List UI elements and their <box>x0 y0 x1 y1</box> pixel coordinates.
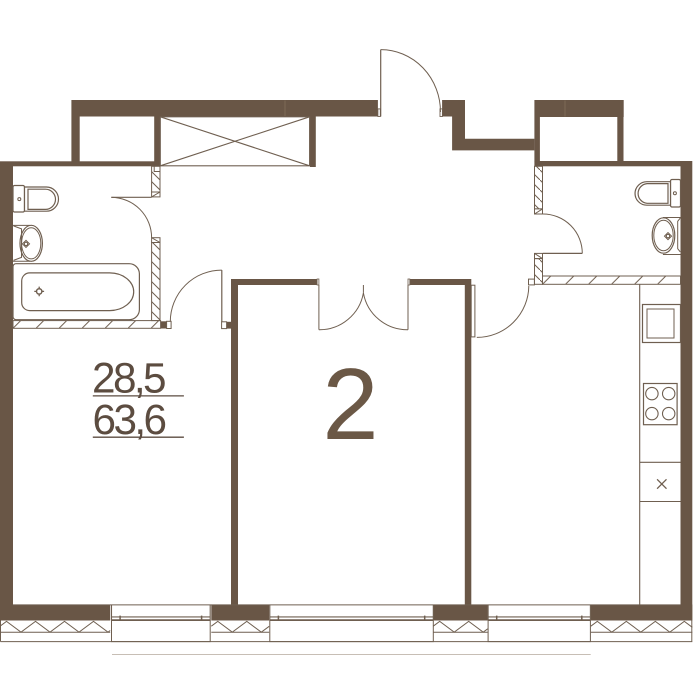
svg-text:28,5: 28,5 <box>92 355 165 402</box>
svg-text:2: 2 <box>322 349 378 461</box>
svg-text:63,6: 63,6 <box>93 396 166 443</box>
